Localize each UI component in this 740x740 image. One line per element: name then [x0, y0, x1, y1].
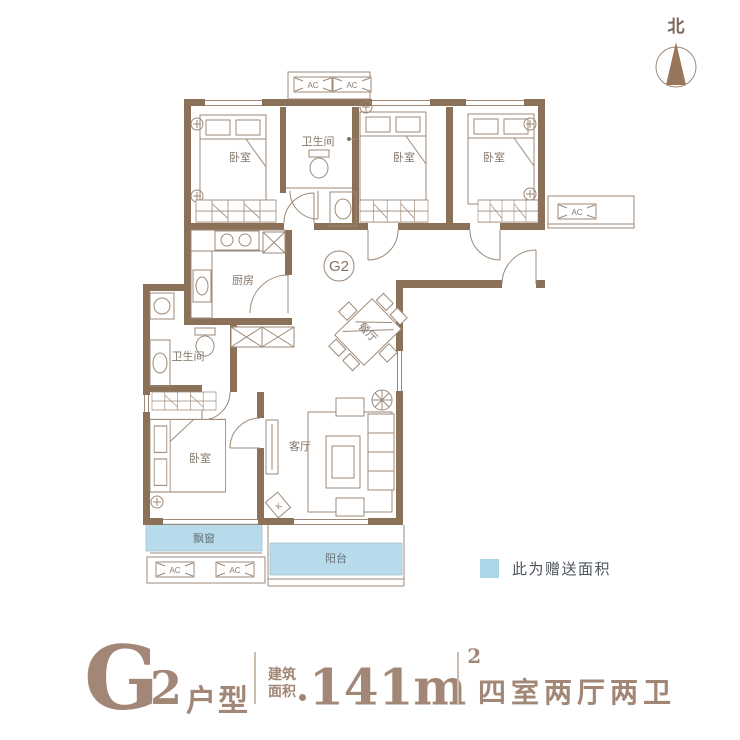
- ac-platform-bottom: AC AC: [147, 553, 265, 583]
- ac-platform-right: AC: [548, 196, 634, 228]
- legend-gift-label: 此为赠送面积: [512, 558, 611, 579]
- room-label-bedroom2: 卧室: [393, 150, 415, 164]
- area-prefix: 建筑 面积: [268, 666, 296, 700]
- sink-hall: [335, 199, 351, 219]
- unit-suffix: 户型: [186, 676, 250, 720]
- title-divider-1: [254, 652, 256, 704]
- ac-label-3: AC: [571, 208, 582, 217]
- coffee-table: [326, 436, 360, 488]
- area-sup: 2: [467, 644, 481, 668]
- area-prefix-line1: 建筑: [268, 666, 296, 683]
- sink-bathroom2: [153, 353, 167, 373]
- door-code: K: [265, 492, 290, 518]
- dining-set: 餐厅: [316, 280, 419, 383]
- room-label-bathroom2: 卫生间: [172, 349, 205, 363]
- room-label-balcony: 阳台: [325, 551, 347, 565]
- area-value: 141m2: [309, 654, 480, 714]
- room-label-living: 客厅: [289, 439, 311, 453]
- ac-label-5: AC: [229, 566, 240, 575]
- area-number: 141: [309, 658, 413, 717]
- room-label-bedroom4: 卧室: [189, 451, 211, 465]
- room-label-bedroom1: 卧室: [229, 150, 251, 164]
- title-divider-2: [457, 652, 459, 704]
- wardrobe-bedroom1: [196, 200, 276, 222]
- room-label-bathroom1: 卫生间: [302, 134, 335, 148]
- legend-gift-swatch: [480, 559, 499, 578]
- compass-icon: [653, 39, 699, 89]
- room-label-bay-window: 飘窗: [193, 531, 215, 545]
- armchair-bottom: [336, 498, 364, 516]
- unit-number: 2: [150, 668, 182, 708]
- armchair-top: [336, 398, 364, 416]
- compass: 北: [650, 12, 702, 94]
- unit-letter: G: [84, 638, 159, 718]
- stove: [215, 231, 259, 250]
- ac-platform-top: AC AC: [288, 72, 371, 99]
- bed-bedroom4: [150, 419, 226, 492]
- layout-description: 四室两厅两卫: [478, 671, 676, 711]
- wardrobe-bedroom3: [478, 200, 538, 222]
- room-label-kitchen: 厨房: [232, 274, 254, 287]
- unit-badge: G2: [324, 251, 354, 281]
- ac-label-1: AC: [307, 81, 318, 90]
- area-prefix-line2: 面积: [268, 683, 296, 700]
- unit-badge-label: G2: [329, 258, 349, 275]
- room-label-bedroom3: 卧室: [483, 150, 505, 164]
- toilet-bathroom1: [309, 150, 329, 178]
- wardrobe-bedroom2: [360, 200, 428, 222]
- legend: 此为赠送面积: [480, 558, 611, 579]
- ac-label-4: AC: [169, 566, 180, 575]
- wardrobe-bedroom4: [152, 392, 216, 410]
- north-label: 北: [650, 12, 702, 37]
- ac-label-2: AC: [346, 81, 357, 90]
- area-approx-dot: [299, 694, 306, 701]
- floor-plan: AC AC AC AC AC: [130, 55, 650, 600]
